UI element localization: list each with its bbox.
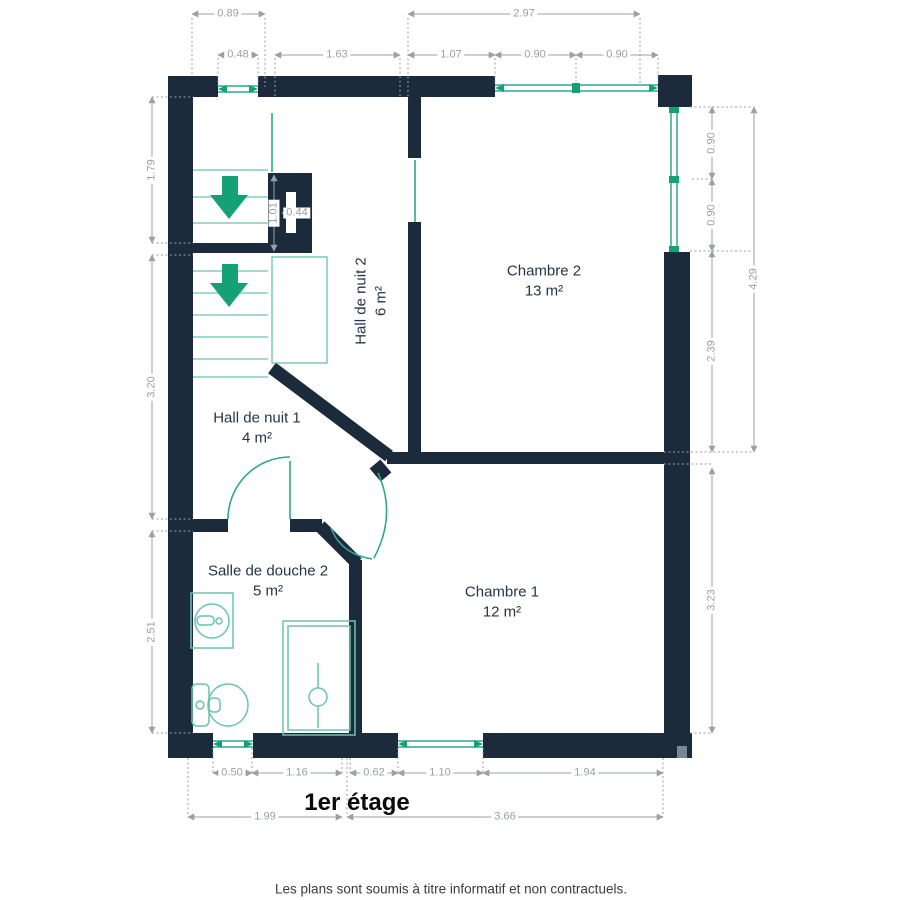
stairwell-opening [272, 257, 327, 363]
room-area: 4 m² [213, 428, 301, 448]
room-label-salle-de-douche-2: Salle de douche 2 5 m² [208, 562, 328, 601]
dim-label: 1.10 [426, 768, 453, 779]
window-top-large-icon [495, 83, 658, 93]
room-area: 12 m² [465, 602, 539, 622]
room-name: Chambre 1 [465, 583, 539, 603]
dim-label: 0.90 [521, 50, 548, 61]
dim-label: 1.63 [323, 50, 350, 61]
dim-label: 3.20 [147, 373, 158, 400]
dim-label: 1.94 [571, 768, 598, 779]
floor-title: 1er étage [304, 789, 409, 817]
room-name: Salle de douche 2 [208, 562, 328, 582]
dim-label: 0.90 [603, 50, 630, 61]
dim-label: 1.16 [283, 768, 310, 779]
dim-label: 1.07 [437, 50, 464, 61]
dim-label: 1.01 [269, 199, 280, 226]
dim-label: 3.66 [491, 812, 518, 823]
room-label-chambre-1: Chambre 1 12 m² [465, 583, 539, 622]
door-arc-shower-room-a [374, 473, 387, 558]
door-arc-hall1 [228, 457, 290, 519]
room-name: Chambre 2 [507, 262, 581, 282]
room-name: Hall de nuit 2 [352, 257, 372, 345]
dim-label: 0.90 [707, 129, 718, 156]
dim-label: 0.44 [283, 208, 310, 219]
dim-label: 1.79 [147, 156, 158, 183]
dim-label: 0.89 [214, 9, 241, 20]
room-area: 5 m² [208, 581, 328, 601]
room-label-hall-de-nuit-1: Hall de nuit 1 4 m² [213, 409, 301, 448]
dim-label: 2.51 [147, 618, 158, 645]
floor-plan-page: Chambre 2 13 m² Chambre 1 12 m² Hall de … [0, 0, 900, 900]
dim-label: 2.97 [510, 9, 537, 20]
window-top-small-icon [218, 85, 258, 93]
sink-icon [191, 593, 233, 648]
disclaimer-text: Les plans sont soumis à titre informatif… [275, 882, 627, 897]
room-area: 13 m² [507, 281, 581, 301]
window-bottom-large-icon [398, 740, 483, 748]
shower-icon [283, 621, 355, 735]
dim-label: 2.39 [707, 337, 718, 364]
window-right-icon [669, 107, 679, 252]
dim-label: 0.62 [360, 768, 387, 779]
room-label-hall-de-nuit-2: Hall de nuit 2 6 m² [352, 257, 391, 345]
dim-label: 3.23 [707, 586, 718, 613]
dim-label: 0.48 [224, 50, 251, 61]
room-area: 6 m² [371, 257, 391, 345]
room-label-chambre-2: Chambre 2 13 m² [507, 262, 581, 301]
dim-label: 0.50 [218, 768, 245, 779]
stair-arrow-icon [210, 176, 248, 219]
dim-label: 1.99 [251, 812, 278, 823]
room-name: Hall de nuit 1 [213, 409, 301, 429]
window-bottom-small-icon [213, 740, 253, 748]
watermark [677, 746, 687, 758]
floor-plan-drawing [0, 0, 900, 900]
toilet-icon [192, 684, 248, 726]
dim-label: 4.29 [749, 265, 760, 292]
dim-label: 0.90 [707, 201, 718, 228]
